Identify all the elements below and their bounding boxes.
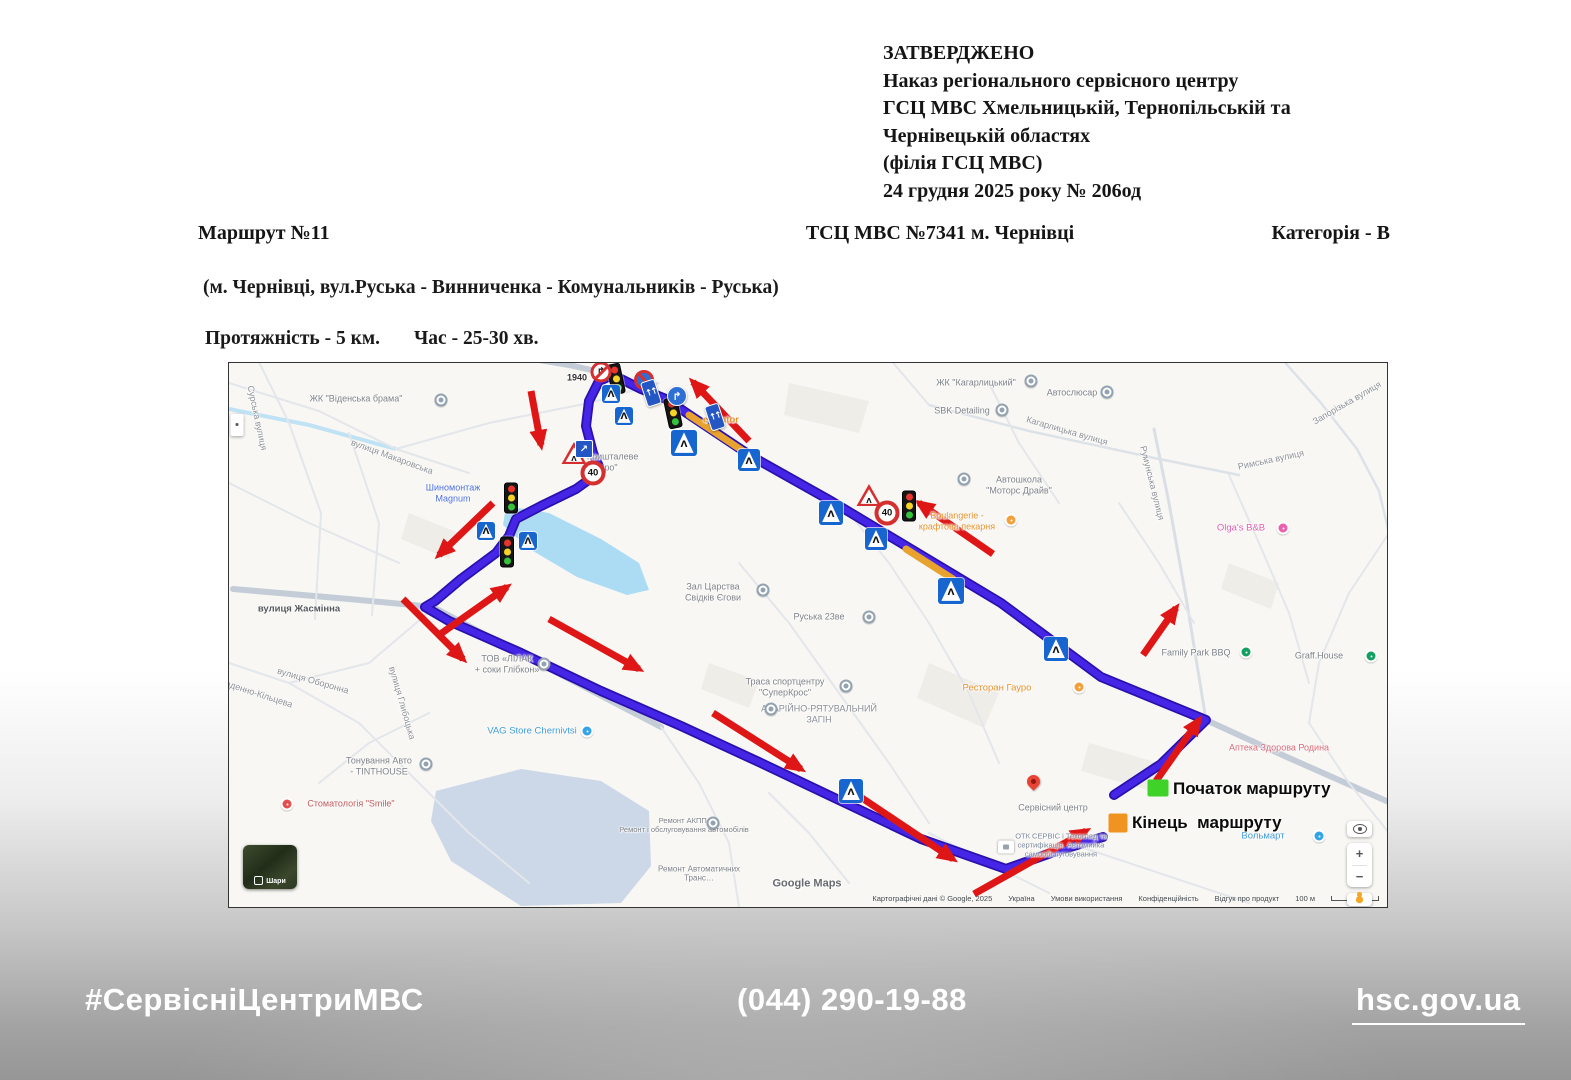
route-distance: Протяжність - 5 км. xyxy=(205,328,380,350)
crosswalk-icon: Λ xyxy=(819,501,843,525)
route-duration: Час - 25-30 хв. xyxy=(414,328,538,350)
map-label: Olga's B&B xyxy=(1217,522,1265,533)
approval-line: Наказ регіонального сервісного центру xyxy=(883,68,1463,96)
poi-icon xyxy=(581,725,594,738)
poi-icon xyxy=(538,658,551,671)
map-label: АВАРІЙНО-РЯТУВАЛЬНИЙ ЗАГІН xyxy=(761,703,877,724)
map-label: Сервісний центр xyxy=(1018,803,1087,814)
map-label: Boulangerie - крафтова пекарня xyxy=(919,510,995,531)
map-label: SBK Detailing xyxy=(934,406,990,417)
traffic-light-icon xyxy=(504,483,518,514)
speed-icon: 40 xyxy=(581,461,606,486)
pegman-button[interactable] xyxy=(1347,893,1372,906)
map-label: Стоматологія "Smile" xyxy=(307,799,394,810)
route-description: (м. Чернівці, вул.Руська - Винниченка - … xyxy=(203,277,779,299)
map-label: ТОВ «ЛІЛАК + соки Глібкон» xyxy=(475,653,540,674)
crosswalk-icon: Λ xyxy=(477,522,495,540)
crosswalk-icon: Λ xyxy=(865,528,887,550)
category-label: Категорія - В xyxy=(1271,222,1390,245)
crosswalk-icon: Λ xyxy=(938,578,964,604)
zoom-out-button[interactable]: − xyxy=(1347,870,1372,883)
map-label: Траса спортцентру "СуперКрос" xyxy=(746,676,825,697)
diag-icon: ↗ xyxy=(575,440,593,458)
approval-line: (філія ГСЦ МВС) xyxy=(883,150,1463,178)
route-map[interactable]: ΛΛΛΛΛΛΛΛΛΛΛ4040ΛΛ↱↱↑↑↑↑↗ЖК "Віденська бр… xyxy=(228,362,1388,908)
street-view-coverage-button[interactable] xyxy=(1347,821,1372,837)
footer-hashtag: #СервісніЦентриМВС xyxy=(85,982,424,1018)
curve-icon: ↱ xyxy=(667,386,687,406)
route-stats: Протяжність - 5 км. Час - 25-30 хв. xyxy=(205,328,538,350)
crosswalk-icon: Λ xyxy=(519,532,537,550)
poi-icon xyxy=(1365,650,1378,663)
map-label: Руська 23ве xyxy=(794,612,845,623)
map-label: вулиця Жасмінна xyxy=(258,603,340,614)
route-start-marker-icon xyxy=(1148,780,1169,797)
map-side-panel-icon xyxy=(231,414,244,436)
poi-icon xyxy=(435,394,448,407)
poi-icon xyxy=(1005,514,1018,527)
approval-line: ГСЦ МВС Хмельницькій, Тернопільській та xyxy=(883,95,1463,123)
legend-end-label: Кінець маршруту xyxy=(1132,813,1282,833)
crosswalk-icon: Λ xyxy=(615,407,633,425)
footer-site-link[interactable]: hsc.gov.ua xyxy=(1352,982,1525,1025)
crosswalk-icon: Λ xyxy=(671,430,697,456)
map-label: VAG Store Chernivtsi xyxy=(487,725,577,736)
map-label: Тонування Авто - TINTHOUSE xyxy=(346,755,412,776)
route-number: Маршрут №11 xyxy=(198,222,330,245)
map-label: 1940 xyxy=(567,373,587,384)
approval-line: 24 грудня 2025 року № 206од xyxy=(883,178,1463,206)
map-label: ЖК "Кагарлицький" xyxy=(936,378,1016,389)
map-label: Шиномонтаж Magnum xyxy=(426,482,480,503)
map-label: Family Park BBQ xyxy=(1161,648,1230,659)
traffic-light-icon xyxy=(500,537,514,568)
map-label: Ремонт Автоматичних Транс… xyxy=(658,865,740,884)
crosswalk-icon: Λ xyxy=(602,385,620,403)
map-copyright: Картографічні дані © Google, 2025 xyxy=(872,894,992,903)
route-end-marker-icon xyxy=(1109,814,1128,833)
pegman-icon xyxy=(1356,896,1363,903)
attribution-link[interactable]: Умови використання xyxy=(1051,894,1123,903)
service-center-name: ТСЦ МВС №7341 м. Чернівці xyxy=(806,222,1074,245)
poi-icon xyxy=(1025,375,1038,388)
layers-icon xyxy=(254,876,263,885)
crosswalk-icon: Λ xyxy=(839,779,863,803)
map-label: ЖК "Віденська брама" xyxy=(310,394,403,405)
poi-icon xyxy=(1240,646,1253,659)
attribution-link[interactable]: Україна xyxy=(1008,894,1034,903)
approval-line: Чернівецькій областях xyxy=(883,123,1463,151)
satellite-layer-toggle[interactable]: Шари xyxy=(243,845,297,889)
poi-icon xyxy=(840,680,853,693)
route-title-row: Маршрут №11 ТСЦ МВС №7341 м. Чернівці Ка… xyxy=(0,222,1571,248)
divider xyxy=(1352,865,1367,866)
approval-block: ЗАТВЕРДЖЕНО Наказ регіонального сервісно… xyxy=(883,40,1463,205)
map-label: Ремонт АКПП- Ремонт і обслуговування авт… xyxy=(619,817,748,835)
traffic-light-icon xyxy=(902,491,916,522)
map-label: Google Maps xyxy=(772,878,841,891)
no-right-turn-icon: ↱ xyxy=(591,362,612,383)
map-label: Ресторан Гауро xyxy=(963,682,1032,693)
eye-icon xyxy=(1353,824,1367,834)
zoom-controls: + − xyxy=(1347,843,1372,887)
zoom-in-button[interactable]: + xyxy=(1347,847,1372,860)
footer-phone: (044) 290-19-88 xyxy=(737,982,967,1018)
legend-start-label: Початок маршруту xyxy=(1173,779,1331,799)
poi-icon xyxy=(420,758,433,771)
poi-icon xyxy=(1277,522,1290,535)
layers-label: Шари xyxy=(266,878,286,885)
poi-icon xyxy=(863,611,876,624)
poi-icon xyxy=(281,798,294,811)
poi-icon xyxy=(765,703,778,716)
map-label: Автослюсар xyxy=(1047,388,1098,399)
map-label: Аптека Здорова Родина xyxy=(1229,743,1329,754)
crosswalk-icon: Λ xyxy=(738,449,760,471)
poi-icon xyxy=(1073,681,1086,694)
attribution-link[interactable]: Конфіденційність xyxy=(1138,894,1198,903)
poi-icon xyxy=(757,584,770,597)
white-box-icon xyxy=(998,841,1014,854)
map-label: Graff.House xyxy=(1295,651,1343,662)
map-label: Зал Царства Свідків Єгови xyxy=(685,581,741,602)
map-attribution: Картографічні дані © Google, 2025 Україн… xyxy=(629,891,1379,905)
crosswalk-icon: Λ xyxy=(1044,637,1068,661)
poi-icon xyxy=(958,473,971,486)
map-label: Автошкола "Моторс Драйв" xyxy=(986,474,1052,495)
map-label: ОТК СЕРВІС і Техогляд та сертифікація. А… xyxy=(1015,833,1107,860)
poi-icon xyxy=(1313,830,1326,843)
approval-line: ЗАТВЕРДЖЕНО xyxy=(883,40,1463,68)
poi-icon xyxy=(996,404,1009,417)
poi-icon xyxy=(1101,386,1114,399)
map-scale-text: 100 м xyxy=(1295,894,1315,903)
attribution-link[interactable]: Відгук про продукт xyxy=(1215,894,1280,903)
poi-icon xyxy=(707,817,720,830)
